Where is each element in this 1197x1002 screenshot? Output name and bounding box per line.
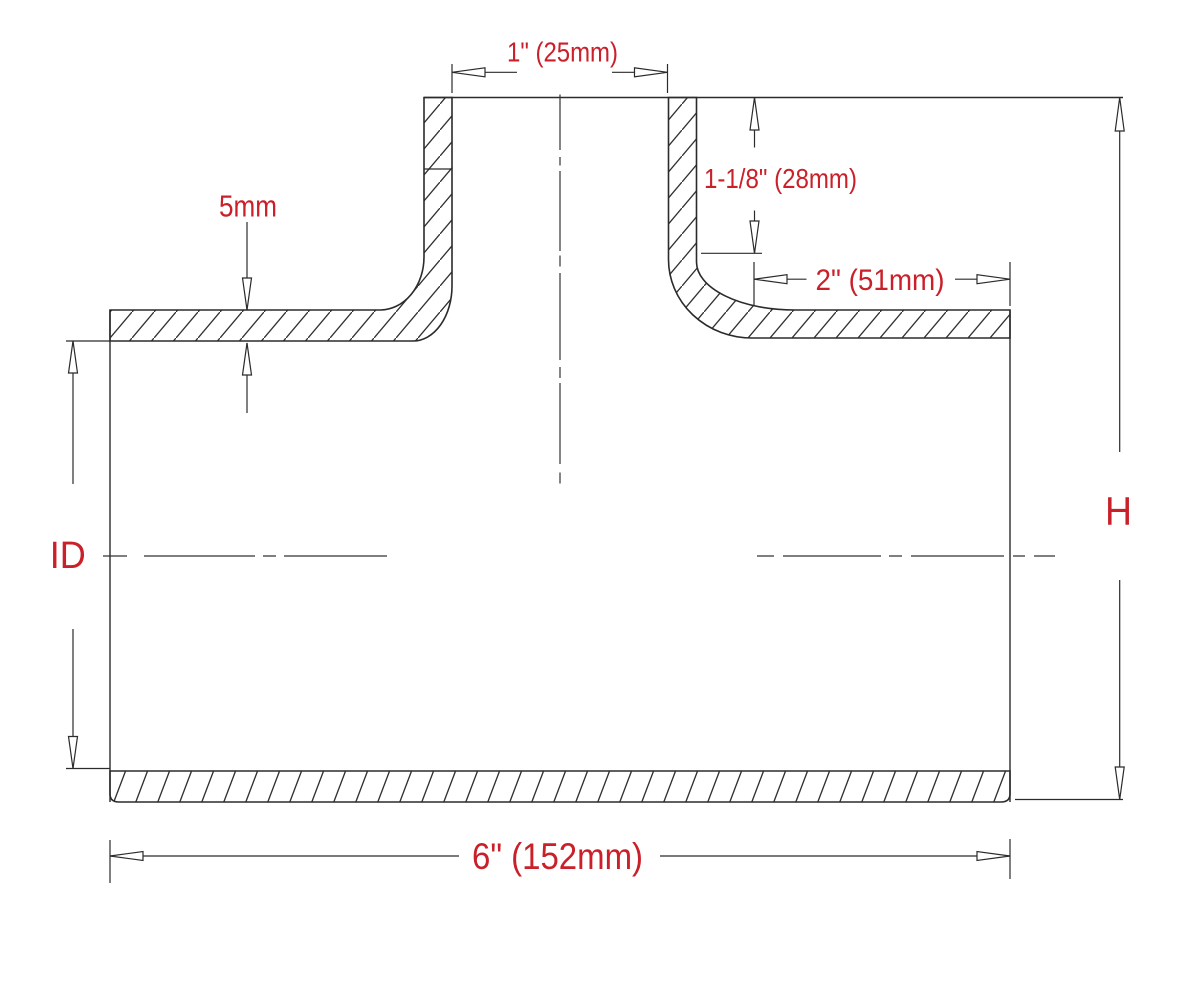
svg-text:1" (25mm): 1" (25mm) [507,37,618,68]
svg-text:ID: ID [50,535,86,577]
svg-text:H: H [1105,490,1132,534]
svg-text:6" (152mm): 6" (152mm) [472,836,643,877]
svg-text:5mm: 5mm [219,189,277,224]
svg-text:2" (51mm): 2" (51mm) [816,264,945,297]
svg-text:1-1/8" (28mm): 1-1/8" (28mm) [704,163,857,194]
